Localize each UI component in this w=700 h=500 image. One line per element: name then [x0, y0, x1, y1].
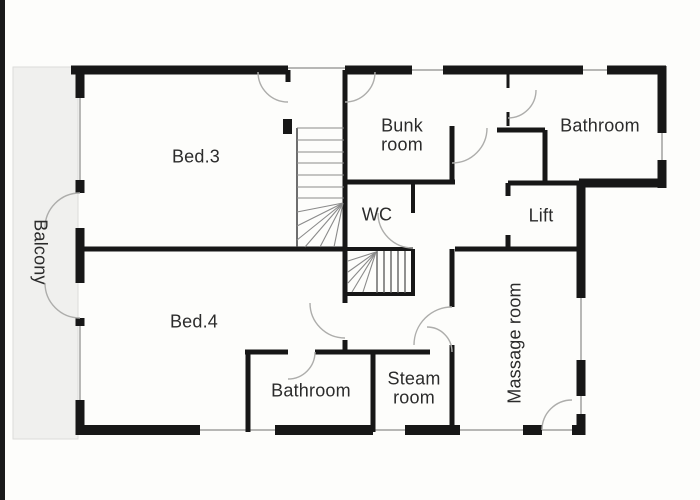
door-arc-bathroom-top: [508, 90, 536, 118]
door-arc-entry-left: [258, 72, 288, 102]
room-label-balcony: Balcony: [30, 219, 49, 284]
door-arc-massage-exit: [542, 400, 572, 430]
floor-plan-drawing: [0, 0, 700, 500]
room-label-lift: Lift: [529, 206, 554, 225]
room-label-bed3: Bed.3: [172, 147, 220, 166]
room-label-bed4: Bed.4: [170, 312, 218, 331]
floor-plan: Bed.3 Bed.4 Bunk room WC Bathroom Lift M…: [0, 0, 700, 500]
room-label-wc: WC: [362, 205, 392, 224]
door-arc-bunk-room: [452, 128, 487, 163]
upper-staircase: [297, 128, 344, 247]
door-arc-bathroom-bottom: [288, 352, 315, 379]
door-arc-bed4: [310, 303, 345, 338]
room-label-bathroom-bottom: Bathroom: [271, 381, 351, 400]
room-label-steam-room: Steam room: [387, 370, 440, 409]
room-label-bathroom-top: Bathroom: [560, 116, 640, 135]
door-arc-entry-right: [345, 72, 375, 102]
lower-staircase: [348, 251, 405, 293]
door-arc-massage-room: [414, 307, 452, 345]
room-label-bunk-room: Bunk room: [381, 117, 423, 156]
room-label-massage-room: Massage room: [505, 282, 524, 403]
door-arc-steam-room: [427, 327, 452, 352]
